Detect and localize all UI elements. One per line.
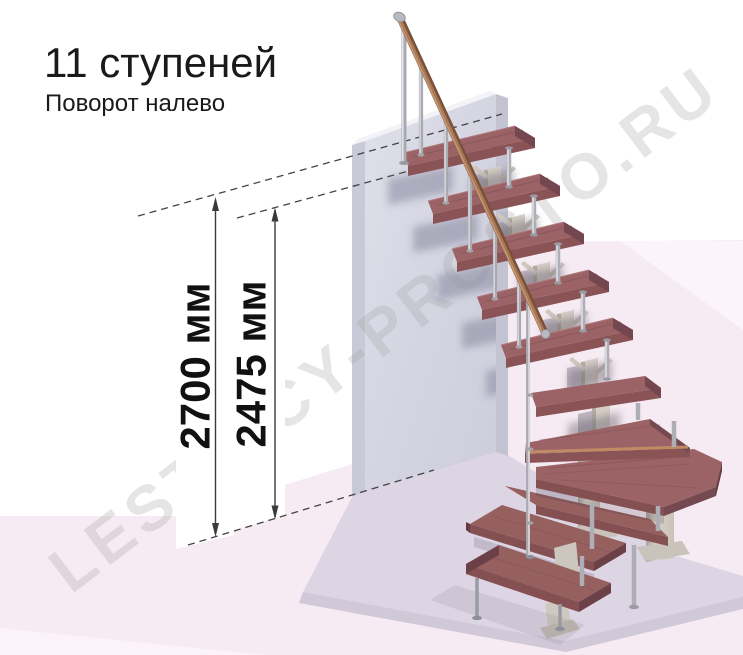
svg-text:11 ступеней: 11 ступеней (44, 39, 277, 86)
svg-text:2700 мм: 2700 мм (172, 282, 219, 449)
svg-text:Поворот налево: Поворот налево (45, 90, 225, 117)
svg-text:2475 мм: 2475 мм (228, 280, 275, 447)
